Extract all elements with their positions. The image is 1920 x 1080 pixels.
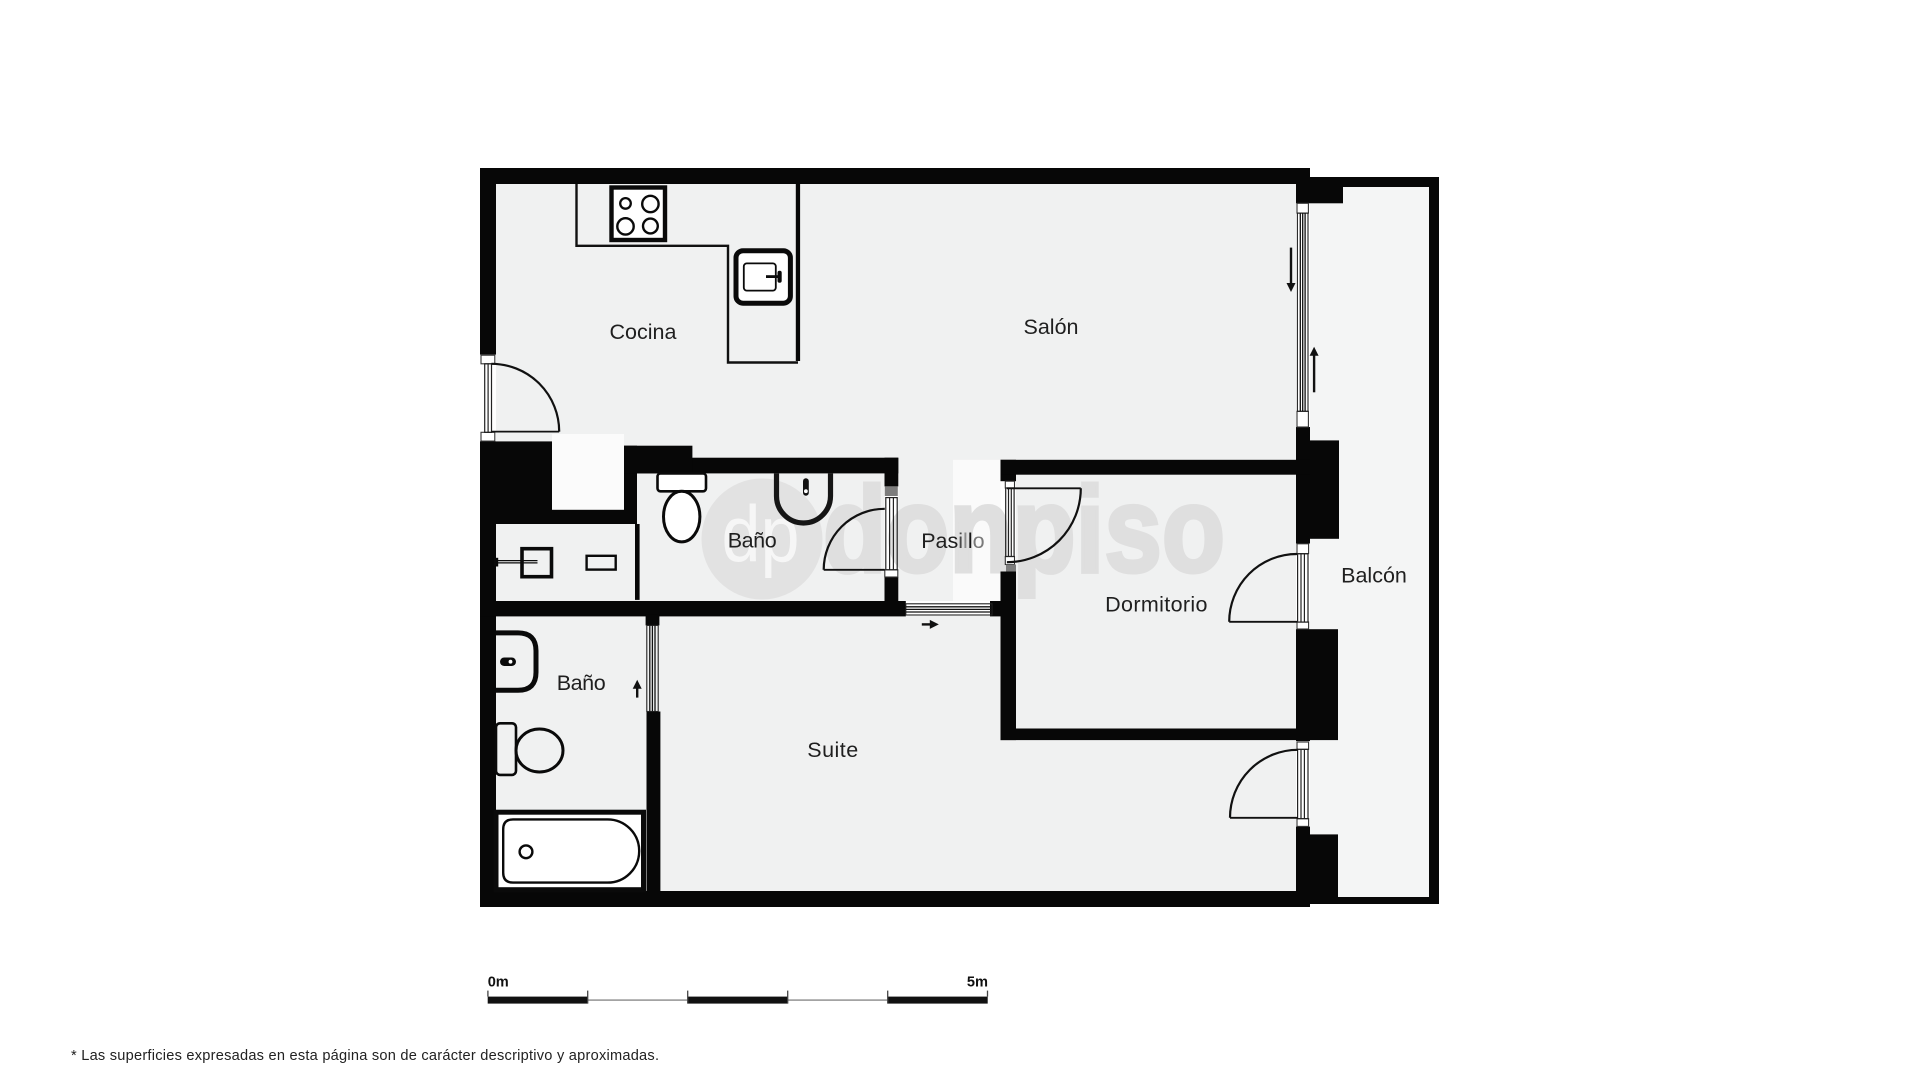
svg-text:Suite: Suite	[807, 738, 859, 762]
svg-text:donpiso: donpiso	[823, 462, 1225, 598]
svg-text:Cocina: Cocina	[610, 320, 677, 344]
svg-text:Pasillo: Pasillo	[921, 529, 984, 553]
svg-text:Balcón: Balcón	[1341, 564, 1407, 588]
svg-text:5m: 5m	[967, 975, 988, 991]
svg-text:Salón: Salón	[1024, 315, 1079, 339]
svg-text:Baño: Baño	[557, 671, 606, 695]
svg-text:Baño: Baño	[728, 529, 777, 553]
svg-text:* Las superficies expresadas e: * Las superficies expresadas en esta pág…	[71, 1048, 659, 1064]
svg-text:0m: 0m	[488, 975, 509, 991]
svg-text:Dormitorio: Dormitorio	[1105, 593, 1208, 617]
